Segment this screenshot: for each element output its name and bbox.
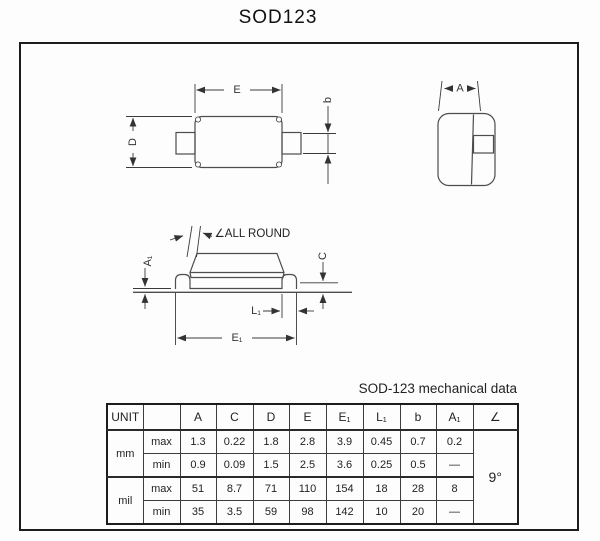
table-row-mil-max: mil max 51 8.7 71 110 154 18 28 8 (107, 477, 518, 501)
value-cell: 71 (253, 477, 289, 501)
value-cell: 8 (436, 477, 473, 501)
unit-cell-mm: mm (107, 430, 143, 477)
value-cell: 142 (326, 501, 363, 525)
value-cell: 98 (289, 501, 326, 525)
value-cell: 1.5 (253, 454, 289, 478)
value-cell: — (436, 454, 473, 478)
end-lead (474, 136, 494, 154)
value-cell: 8.7 (216, 477, 253, 501)
top-view (176, 117, 301, 168)
value-cell: 0.09 (216, 454, 253, 478)
col-header-A: A (180, 404, 216, 430)
datasheet-page: SOD123 (0, 0, 600, 541)
value-cell: 154 (326, 477, 363, 501)
right-lead (282, 133, 301, 155)
dim-label-E: E (233, 84, 240, 96)
value-cell: 0.9 (180, 454, 216, 478)
value-cell: — (436, 501, 473, 525)
limit-cell: max (143, 430, 180, 454)
value-cell: 2.5 (289, 454, 326, 478)
corner-radius-marks (195, 117, 281, 167)
dim-label-E1: E₁ (231, 332, 242, 344)
col-header-angle: ∠ (473, 404, 518, 430)
dim-label-D: D (127, 138, 139, 146)
dim-label-b: b (322, 97, 334, 103)
col-header-E: E (289, 404, 326, 430)
top-view-dimensions (126, 84, 336, 184)
profile-dimensions (133, 226, 338, 345)
value-cell: 1.8 (253, 430, 289, 454)
value-cell: 3.9 (326, 430, 363, 454)
value-cell: 0.45 (363, 430, 400, 454)
unit-cell-mil: mil (107, 477, 143, 524)
angle-value-cell: 9° (473, 430, 518, 524)
profile-body (190, 254, 284, 278)
limit-cell: min (143, 454, 180, 478)
mechanical-data-table: UNIT A C D E E₁ L₁ b A₁ ∠ mm max 1.3 0.2… (106, 403, 519, 525)
value-cell: 1.3 (180, 430, 216, 454)
dim-label-A1: A₁ (142, 255, 154, 266)
value-cell: 3.5 (216, 501, 253, 525)
value-cell: 0.2 (436, 430, 473, 454)
col-header-b: b (400, 404, 436, 430)
col-header-E1: E₁ (326, 404, 363, 430)
end-body-outline (438, 114, 495, 186)
profile-left-lead (176, 275, 297, 290)
value-cell: 18 (363, 477, 400, 501)
value-cell: 59 (253, 501, 289, 525)
value-cell: 51 (180, 477, 216, 501)
value-cell: 0.25 (363, 454, 400, 478)
dim-label-A: A (456, 83, 464, 95)
dim-label-C: C (317, 252, 329, 260)
col-header-L1: L₁ (363, 404, 400, 430)
unit-header: UNIT (107, 404, 143, 430)
table-row-mm-max: mm max 1.3 0.22 1.8 2.8 3.9 0.45 0.7 0.2… (107, 430, 518, 454)
value-cell: 0.5 (400, 454, 436, 478)
header-row: UNIT A C D E E₁ L₁ b A₁ ∠ (107, 404, 518, 430)
col-header-A1: A₁ (436, 404, 473, 430)
value-cell: 35 (180, 501, 216, 525)
end-view (438, 114, 495, 186)
all-round-label: ∠ALL ROUND (215, 228, 291, 240)
value-cell: 28 (400, 477, 436, 501)
value-cell: 3.6 (326, 454, 363, 478)
dim-label-L1: L₁ (251, 305, 261, 317)
table-row-mil-min: min 35 3.5 59 98 142 10 20 — (107, 501, 518, 525)
table-caption: SOD-123 mechanical data (106, 381, 517, 396)
value-cell: 110 (289, 477, 326, 501)
body-outline (195, 117, 282, 168)
limit-cell: min (143, 501, 180, 525)
value-cell: 10 (363, 501, 400, 525)
value-cell: 0.22 (216, 430, 253, 454)
table-row-mm-min: min 0.9 0.09 1.5 2.5 3.6 0.25 0.5 — (107, 454, 518, 478)
col-header-D: D (253, 404, 289, 430)
limit-cell: max (143, 477, 180, 501)
col-header-C: C (216, 404, 253, 430)
value-cell: 2.8 (289, 430, 326, 454)
limit-header (143, 404, 180, 430)
left-lead (176, 133, 195, 155)
value-cell: 20 (400, 501, 436, 525)
value-cell: 0.7 (400, 430, 436, 454)
